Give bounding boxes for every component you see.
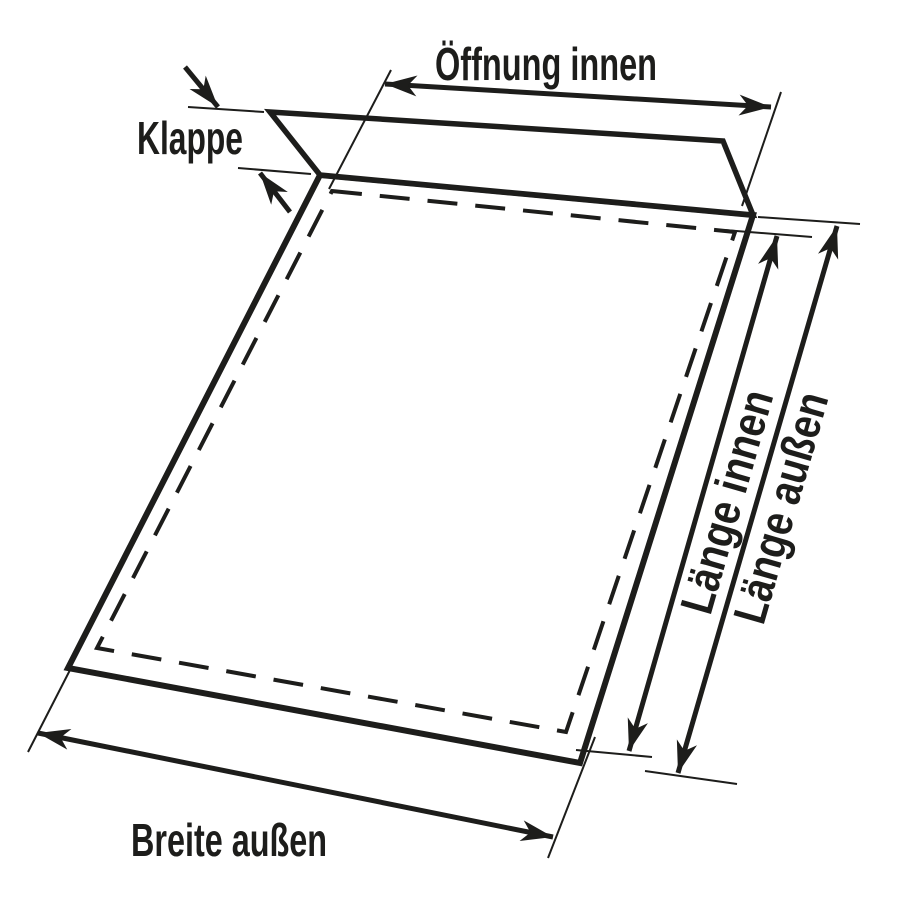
- dimension-klappe: Klappe: [137, 67, 290, 212]
- label-breite-aussen: Breite außen: [131, 814, 327, 866]
- diagram-canvas: Öffnung innen Klappe Länge innen Länge a…: [0, 0, 900, 900]
- label-oeffnung-innen: Öffnung innen: [435, 38, 657, 90]
- extension-line-laenge-aussen-top: [758, 217, 860, 224]
- dimension-oeffnung-innen: Öffnung innen: [385, 38, 771, 107]
- extension-line-oeffnung-right: [742, 92, 781, 206]
- leader-line-klappe-bottom: [238, 168, 311, 174]
- label-klappe: Klappe: [137, 112, 243, 164]
- dimension-breite-aussen: Breite außen: [38, 733, 553, 866]
- klappe-pointer-arrow-bottom: [260, 173, 290, 212]
- envelope-dimension-diagram: Öffnung innen Klappe Länge innen Länge a…: [0, 0, 900, 900]
- extension-line-laenge-aussen-bottom: [645, 771, 737, 784]
- klappe-pointer-arrow-top: [185, 67, 218, 107]
- envelope-shapes: [68, 112, 753, 763]
